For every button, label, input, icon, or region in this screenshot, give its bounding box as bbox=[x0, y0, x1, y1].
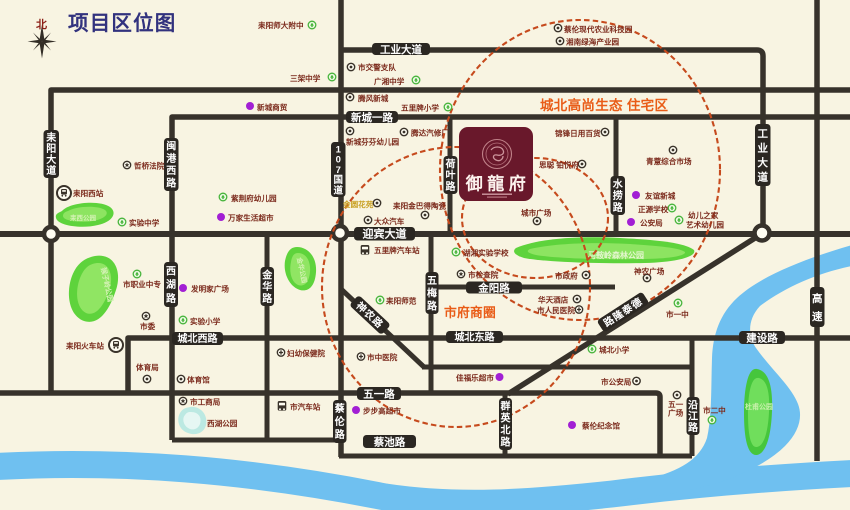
svg-text:市人民医院: 市人民医院 bbox=[537, 305, 575, 315]
svg-text:思聪 铂悦府: 思聪 铂悦府 bbox=[539, 160, 579, 170]
svg-text:妇幼保健院: 妇幼保健院 bbox=[286, 348, 325, 358]
svg-text:城北小学: 城北小学 bbox=[599, 345, 630, 355]
svg-text:新城芬芬幼儿园: 新城芬芬幼儿园 bbox=[346, 137, 400, 147]
svg-text:市政府: 市政府 bbox=[555, 271, 578, 281]
svg-text:市汽车站: 市汽车站 bbox=[290, 402, 321, 412]
svg-text:湖湘实验学校: 湖湘实验学校 bbox=[463, 248, 509, 258]
svg-text:市一中: 市一中 bbox=[666, 309, 689, 319]
svg-text:耒西公园: 耒西公园 bbox=[69, 213, 97, 222]
svg-text:友谊新城: 友谊新城 bbox=[645, 191, 676, 201]
svg-text:大众汽车: 大众汽车 bbox=[374, 216, 405, 226]
svg-text:项目区位图: 项目区位图 bbox=[68, 11, 177, 35]
svg-text:建设路: 建设路 bbox=[745, 331, 778, 344]
svg-text:金阳路: 金阳路 bbox=[477, 281, 510, 294]
svg-text:发明家广场: 发明家广场 bbox=[190, 284, 229, 294]
svg-text:紫荆府幼儿园: 紫荆府幼儿园 bbox=[231, 193, 277, 203]
svg-text:市交警支队: 市交警支队 bbox=[358, 62, 396, 72]
svg-text:广湘中学: 广湘中学 bbox=[374, 76, 405, 86]
svg-text:五里牌汽车站: 五里牌汽车站 bbox=[374, 245, 420, 255]
svg-text:城市广场: 城市广场 bbox=[521, 208, 552, 218]
svg-text:沿江路: 沿江路 bbox=[688, 398, 699, 434]
svg-text:华天酒店: 华天酒店 bbox=[538, 295, 569, 305]
svg-text:体育局: 体育局 bbox=[136, 362, 159, 372]
svg-text:市二中: 市二中 bbox=[703, 405, 726, 415]
svg-text:市工商局: 市工商局 bbox=[190, 397, 221, 407]
svg-text:蔡伦现代农业科技园: 蔡伦现代农业科技园 bbox=[563, 24, 633, 34]
svg-text:市检查院: 市检查院 bbox=[468, 270, 499, 280]
svg-text:闽港西路: 闽港西路 bbox=[166, 140, 177, 190]
svg-text:水捞路: 水捞路 bbox=[612, 177, 624, 213]
svg-text:新城一路: 新城一路 bbox=[351, 111, 393, 124]
svg-text:锦锋日用百货: 锦锋日用百货 bbox=[555, 128, 601, 138]
svg-text:五一路: 五一路 bbox=[363, 387, 395, 400]
svg-text:金圆花苑: 金圆花苑 bbox=[342, 199, 374, 209]
svg-text:迎宾大道: 迎宾大道 bbox=[363, 227, 407, 241]
svg-text:神农广场: 神农广场 bbox=[634, 266, 665, 276]
svg-text:耒阳西站: 耒阳西站 bbox=[73, 188, 104, 198]
svg-text:荷叶路: 荷叶路 bbox=[445, 157, 457, 193]
svg-text:万家生活超市: 万家生活超市 bbox=[227, 213, 274, 223]
svg-text:湘南绿海产业园: 湘南绿海产业园 bbox=[566, 37, 620, 47]
svg-text:市府商圈: 市府商圈 bbox=[444, 305, 496, 320]
svg-text:耒阳火车站: 耒阳火车站 bbox=[66, 341, 104, 351]
svg-text:西湖路: 西湖路 bbox=[166, 265, 177, 304]
svg-text:实验中学: 实验中学 bbox=[129, 218, 160, 228]
svg-text:正源学校: 正源学校 bbox=[638, 204, 669, 214]
svg-text:五里牌小学: 五里牌小学 bbox=[401, 103, 439, 113]
svg-text:蔡池路: 蔡池路 bbox=[373, 435, 406, 448]
svg-text:耒阳金巴得陶瓷: 耒阳金巴得陶瓷 bbox=[393, 201, 447, 211]
svg-text:市职业中专: 市职业中专 bbox=[123, 279, 161, 289]
svg-text:蔡伦纪念馆: 蔡伦纪念馆 bbox=[581, 421, 620, 431]
svg-text:北: 北 bbox=[36, 17, 47, 31]
svg-text:三架中学: 三架中学 bbox=[290, 73, 321, 83]
svg-text:市委: 市委 bbox=[140, 321, 156, 331]
svg-text:艺术幼儿园: 艺术幼儿园 bbox=[686, 220, 724, 230]
svg-text:公安局: 公安局 bbox=[640, 218, 663, 228]
svg-text:西湖公园: 西湖公园 bbox=[207, 418, 238, 428]
svg-text:市中医院: 市中医院 bbox=[367, 352, 398, 362]
svg-text:新城商贸: 新城商贸 bbox=[257, 102, 288, 112]
svg-text:耒阳师大附中: 耒阳师大附中 bbox=[258, 20, 304, 30]
svg-text:腾风新城: 腾风新城 bbox=[357, 93, 389, 103]
svg-text:哲桥法院: 哲桥法院 bbox=[134, 161, 165, 171]
svg-text:金华路: 金华路 bbox=[261, 268, 273, 304]
svg-text:杜甫公园: 杜甫公园 bbox=[745, 402, 773, 411]
svg-text:幼儿之家: 幼儿之家 bbox=[688, 210, 719, 220]
svg-text:步步高超市: 步步高超市 bbox=[363, 406, 401, 416]
svg-text:蔡伦路: 蔡伦路 bbox=[334, 402, 346, 441]
svg-text:御龍府: 御龍府 bbox=[465, 174, 531, 194]
svg-text:耒阳大道: 耒阳大道 bbox=[46, 131, 56, 177]
svg-text:青薏综合市场: 青薏综合市场 bbox=[646, 156, 692, 166]
svg-text:群英北路: 群英北路 bbox=[500, 400, 512, 449]
svg-text:工业大道: 工业大道 bbox=[380, 43, 422, 56]
svg-text:城北西路: 城北西路 bbox=[178, 332, 219, 345]
svg-text:体育馆: 体育馆 bbox=[187, 375, 210, 385]
svg-text:腾达汽修厂: 腾达汽修厂 bbox=[410, 128, 449, 138]
svg-text:城北东路: 城北东路 bbox=[455, 331, 496, 344]
svg-text:五梅路: 五梅路 bbox=[427, 275, 438, 312]
svg-text:实验小学: 实验小学 bbox=[190, 316, 221, 326]
svg-text:城北高尚生态 住宅区: 城北高尚生态 住宅区 bbox=[540, 97, 668, 113]
svg-text:佳福乐超市: 佳福乐超市 bbox=[456, 373, 494, 383]
svg-text:市公安局: 市公安局 bbox=[601, 377, 632, 387]
svg-text:广场: 广场 bbox=[668, 408, 684, 418]
svg-text:耒阳师范: 耒阳师范 bbox=[386, 296, 417, 306]
